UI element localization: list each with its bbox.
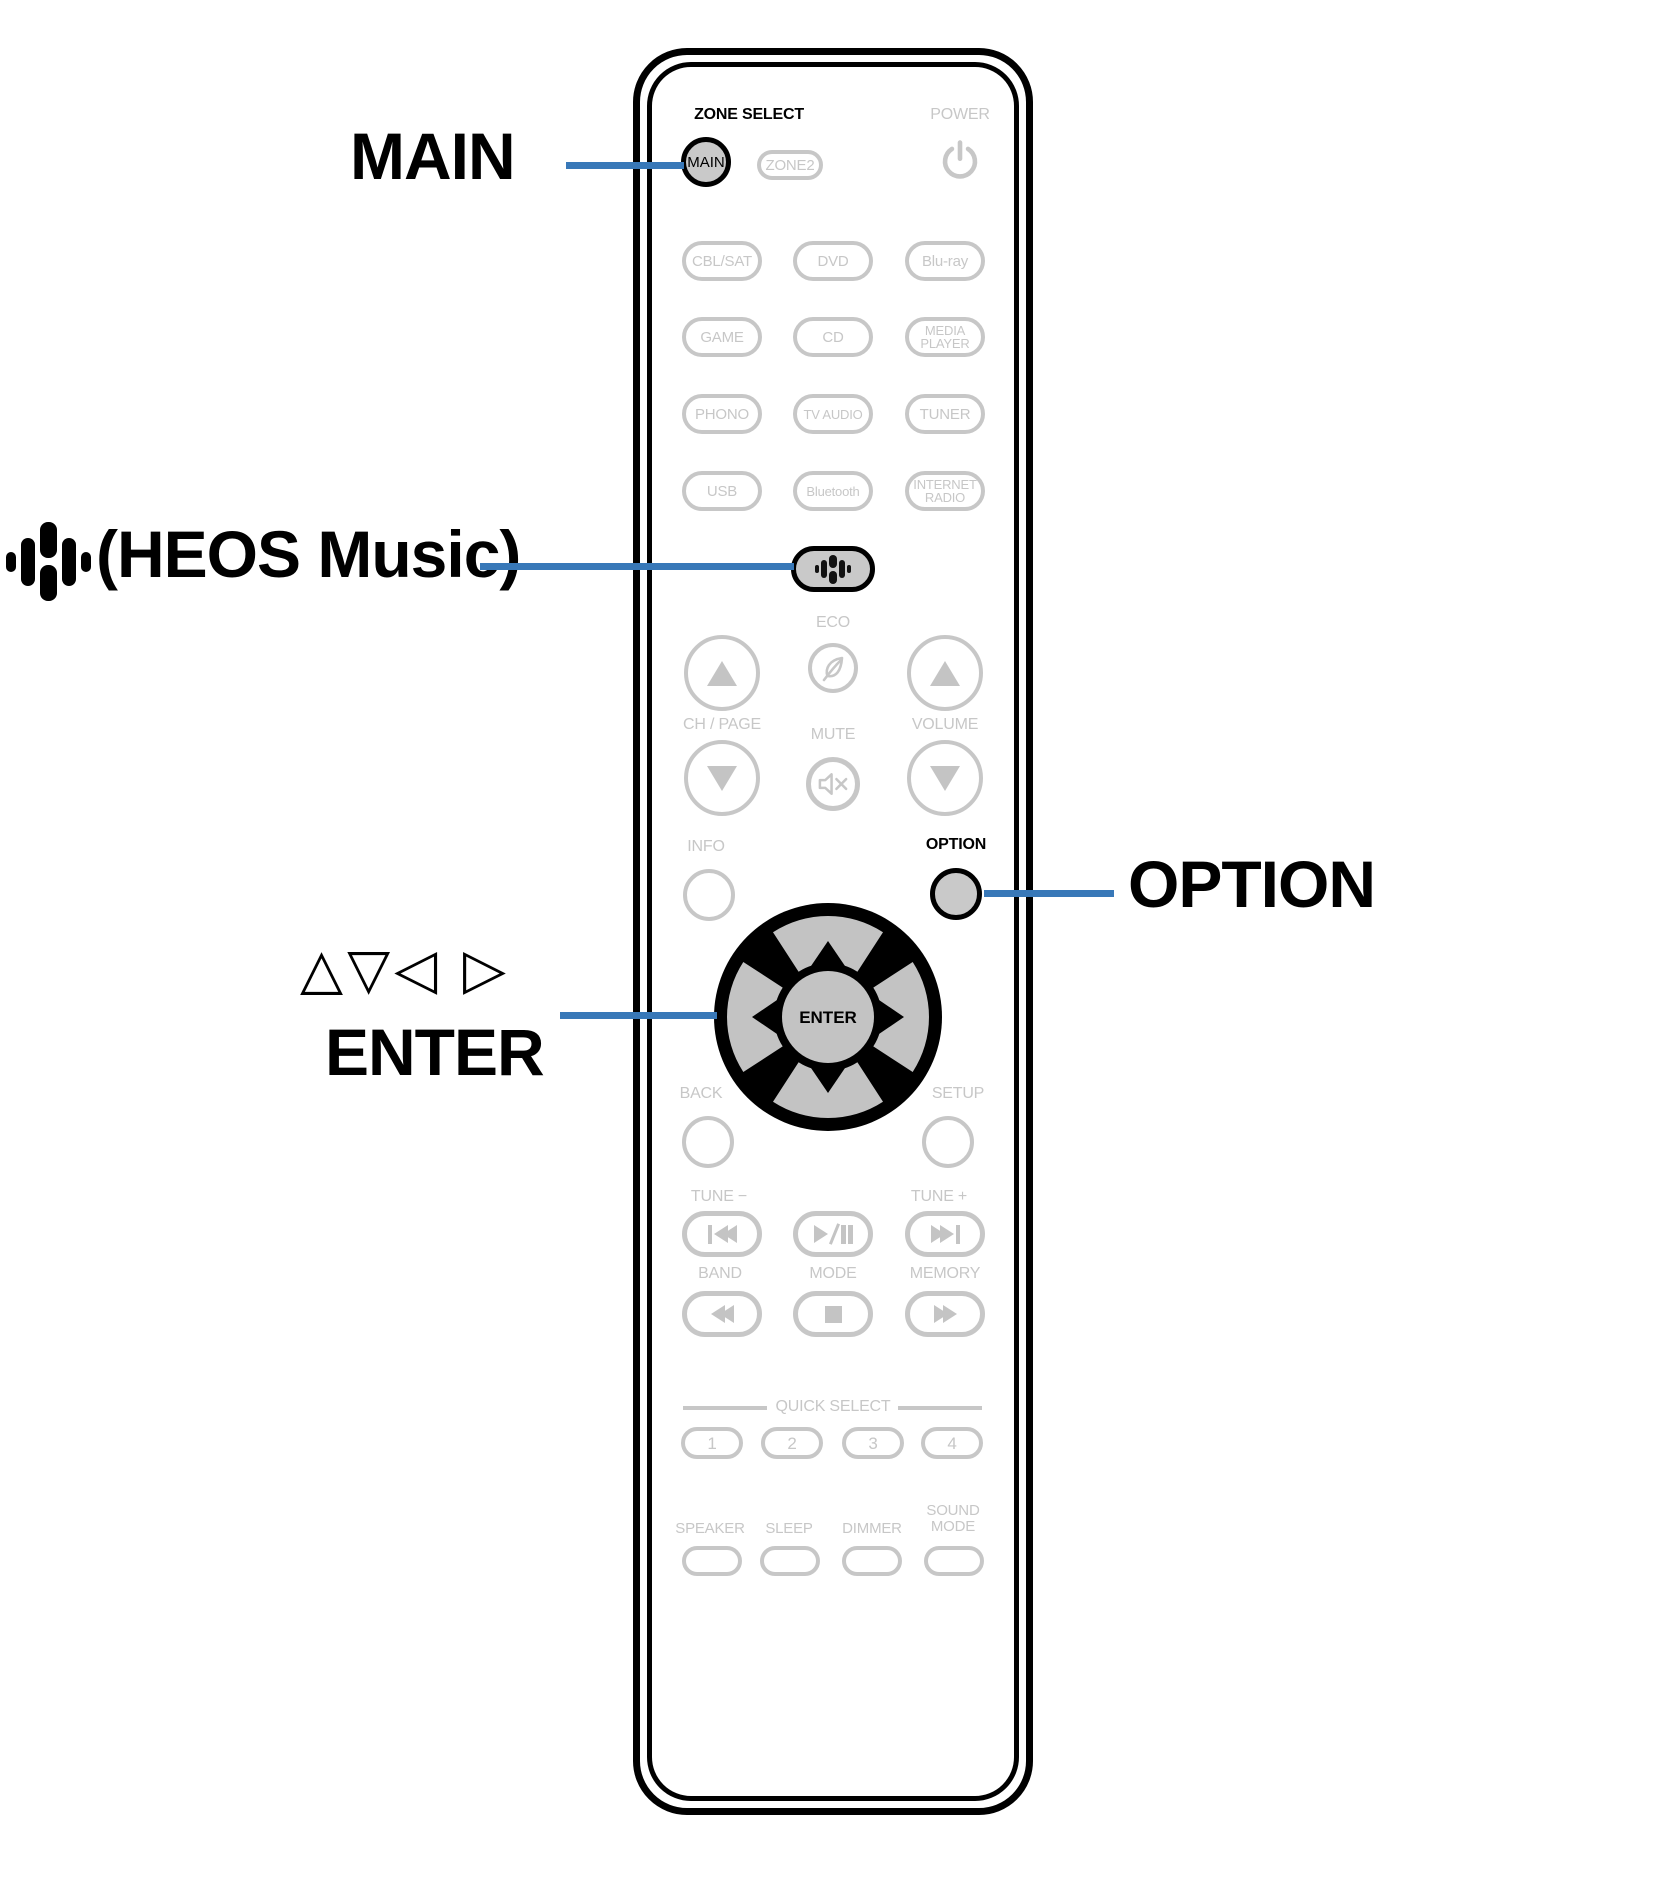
source-button-label: DVD bbox=[817, 254, 848, 269]
source-button-tuner[interactable]: TUNER bbox=[905, 394, 985, 434]
volume-down-button[interactable] bbox=[907, 740, 983, 816]
source-button-dvd[interactable]: DVD bbox=[793, 241, 873, 281]
source-button-tv-audio[interactable]: TV AUDIO bbox=[793, 394, 873, 434]
memory-label: MEMORY bbox=[905, 1265, 985, 1282]
up-triangle-icon bbox=[707, 661, 737, 686]
skip-back-button[interactable] bbox=[682, 1211, 762, 1257]
power-label: POWER bbox=[920, 106, 1000, 123]
callout-line-option bbox=[984, 890, 1114, 897]
skip-back-icon bbox=[708, 1225, 737, 1244]
skip-forward-button[interactable] bbox=[905, 1211, 985, 1257]
source-button-label: Bluetooth bbox=[806, 485, 859, 498]
manual-diagram: ZONE SELECT MAIN ZONE2 POWER CBL/SAT DVD… bbox=[0, 0, 1665, 1878]
mute-label: MUTE bbox=[783, 726, 883, 743]
callout-heos-music: (HEOS Music) bbox=[96, 521, 520, 587]
play-pause-button[interactable] bbox=[793, 1211, 873, 1257]
sleep-button[interactable] bbox=[760, 1546, 820, 1576]
speaker-mute-icon bbox=[817, 770, 850, 798]
sound-mode-label: SOUND MODE bbox=[903, 1503, 1003, 1535]
rewind-button[interactable] bbox=[682, 1291, 762, 1337]
source-button-blu-ray[interactable]: Blu-ray bbox=[905, 241, 985, 281]
tune-minus-label: TUNE − bbox=[679, 1188, 759, 1205]
power-button[interactable] bbox=[937, 138, 983, 184]
heos-wave-icon bbox=[815, 555, 851, 584]
dimmer-button[interactable] bbox=[842, 1546, 902, 1576]
eco-label: ECO bbox=[803, 614, 863, 631]
tune-plus-label: TUNE + bbox=[899, 1188, 979, 1205]
down-triangle-icon bbox=[930, 766, 960, 791]
callout-cursor-arrows: △▽◁ ▷ bbox=[300, 942, 510, 998]
rewind-icon bbox=[711, 1305, 734, 1323]
quick-select-3-label: 3 bbox=[868, 1435, 877, 1452]
leaf-icon bbox=[816, 651, 850, 685]
channel-page-label: CH / PAGE bbox=[664, 716, 780, 733]
source-button-media-player[interactable]: MEDIA PLAYER bbox=[905, 317, 985, 357]
band-label: BAND bbox=[680, 1265, 760, 1282]
mute-button[interactable] bbox=[806, 757, 860, 811]
callout-line-heos bbox=[480, 563, 794, 570]
back-label: BACK bbox=[661, 1085, 741, 1102]
eco-button[interactable] bbox=[808, 643, 858, 693]
quick-select-label: QUICK SELECT bbox=[763, 1398, 903, 1415]
main-zone-button[interactable]: MAIN bbox=[681, 137, 731, 187]
zone2-button[interactable]: ZONE2 bbox=[757, 150, 823, 180]
source-button-label: TUNER bbox=[920, 407, 971, 422]
callout-enter: ENTER bbox=[325, 1019, 544, 1085]
skip-forward-icon bbox=[931, 1225, 960, 1244]
callout-line-main bbox=[566, 162, 684, 169]
quick-select-3-button[interactable]: 3 bbox=[842, 1427, 904, 1459]
quick-select-right-rule bbox=[898, 1406, 982, 1410]
source-button-cbl-sat[interactable]: CBL/SAT bbox=[682, 241, 762, 281]
callout-main: MAIN bbox=[350, 123, 515, 189]
source-button-label: CD bbox=[822, 330, 843, 345]
source-button-bluetooth[interactable]: Bluetooth bbox=[793, 471, 873, 511]
source-button-usb[interactable]: USB bbox=[682, 471, 762, 511]
fast-forward-icon bbox=[934, 1305, 957, 1323]
source-button-game[interactable]: GAME bbox=[682, 317, 762, 357]
quick-select-2-button[interactable]: 2 bbox=[761, 1427, 823, 1459]
power-icon bbox=[937, 138, 983, 184]
source-button-label: GAME bbox=[700, 330, 743, 345]
enter-button[interactable]: ENTER bbox=[788, 1008, 868, 1028]
source-button-label: CBL/SAT bbox=[692, 254, 752, 269]
source-button-label: INTERNET RADIO bbox=[913, 478, 976, 504]
stop-icon bbox=[825, 1306, 842, 1323]
up-triangle-icon bbox=[930, 661, 960, 686]
quick-select-1-button[interactable]: 1 bbox=[681, 1427, 743, 1459]
info-label: INFO bbox=[666, 838, 746, 855]
play-pause-icon bbox=[814, 1223, 853, 1245]
setup-button[interactable] bbox=[922, 1116, 974, 1168]
down-triangle-icon bbox=[707, 766, 737, 791]
setup-label: SETUP bbox=[918, 1085, 998, 1102]
channel-page-up-button[interactable] bbox=[684, 635, 760, 711]
quick-select-left-rule bbox=[683, 1406, 767, 1410]
quick-select-1-label: 1 bbox=[707, 1435, 716, 1452]
back-button[interactable] bbox=[682, 1116, 734, 1168]
zone2-button-label: ZONE2 bbox=[765, 158, 814, 173]
quick-select-4-button[interactable]: 4 bbox=[921, 1427, 983, 1459]
stop-button[interactable] bbox=[793, 1291, 873, 1337]
mode-label: MODE bbox=[793, 1265, 873, 1282]
main-zone-button-label: MAIN bbox=[687, 154, 725, 171]
source-button-phono[interactable]: PHONO bbox=[682, 394, 762, 434]
source-button-label: MEDIA PLAYER bbox=[920, 324, 969, 350]
source-button-label: Blu-ray bbox=[922, 254, 968, 269]
channel-page-down-button[interactable] bbox=[684, 740, 760, 816]
heos-music-icon-large bbox=[6, 522, 91, 601]
source-button-cd[interactable]: CD bbox=[793, 317, 873, 357]
zone-select-label: ZONE SELECT bbox=[679, 106, 819, 123]
source-button-label: PHONO bbox=[695, 407, 749, 422]
source-button-label: TV AUDIO bbox=[803, 408, 862, 421]
option-button-label: OPTION bbox=[916, 836, 996, 853]
sound-mode-button[interactable] bbox=[924, 1546, 984, 1576]
speaker-button[interactable] bbox=[682, 1546, 742, 1576]
callout-option: OPTION bbox=[1128, 851, 1375, 917]
source-button-label: USB bbox=[707, 484, 737, 499]
heos-music-button[interactable] bbox=[791, 546, 875, 592]
volume-label: VOLUME bbox=[887, 716, 1003, 733]
fast-forward-button[interactable] bbox=[905, 1291, 985, 1337]
quick-select-2-label: 2 bbox=[787, 1435, 796, 1452]
callout-line-enter bbox=[560, 1012, 717, 1019]
volume-up-button[interactable] bbox=[907, 635, 983, 711]
source-button-internet-radio[interactable]: INTERNET RADIO bbox=[905, 471, 985, 511]
quick-select-4-label: 4 bbox=[947, 1435, 956, 1452]
